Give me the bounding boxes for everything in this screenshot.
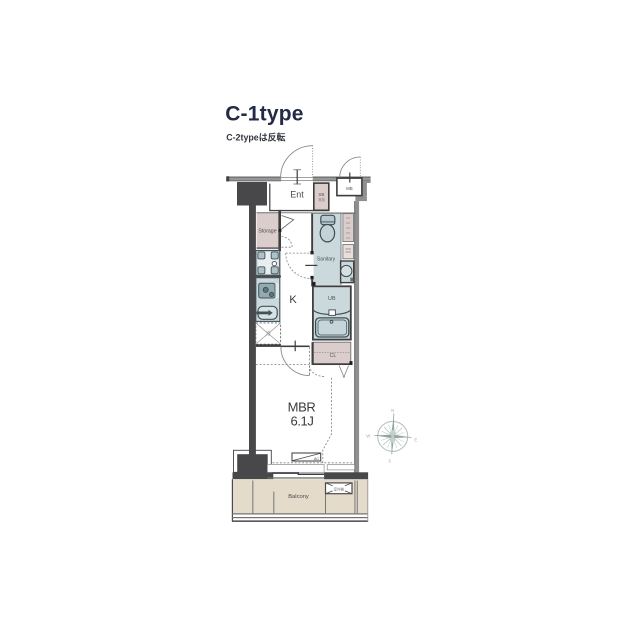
svg-text:Storage: Storage [258,228,276,234]
svg-text:MBR: MBR [288,400,316,415]
svg-text:K: K [289,294,297,306]
svg-text:C-2typeは反転: C-2typeは反転 [226,131,285,142]
svg-text:6.1J: 6.1J [291,414,314,429]
svg-text:UB: UB [328,296,336,302]
svg-text:S: S [388,458,391,463]
svg-text:N: N [391,408,394,413]
svg-text:AC: AC [314,457,320,461]
svg-text:冷: 冷 [265,329,271,337]
svg-text:CL: CL [330,353,337,359]
svg-text:Sanitary: Sanitary [317,256,336,262]
svg-text:Ent: Ent [290,190,304,200]
svg-text:C-1type: C-1type [225,103,303,126]
svg-text:SB: SB [318,192,324,197]
svg-text:MB: MB [346,186,353,191]
svg-text:Balcony: Balcony [288,494,309,500]
svg-text:靴箱: 靴箱 [318,197,325,202]
svg-text:W: W [366,434,371,439]
svg-text:E: E [414,438,417,443]
svg-text:室外機: 室外機 [333,486,344,491]
